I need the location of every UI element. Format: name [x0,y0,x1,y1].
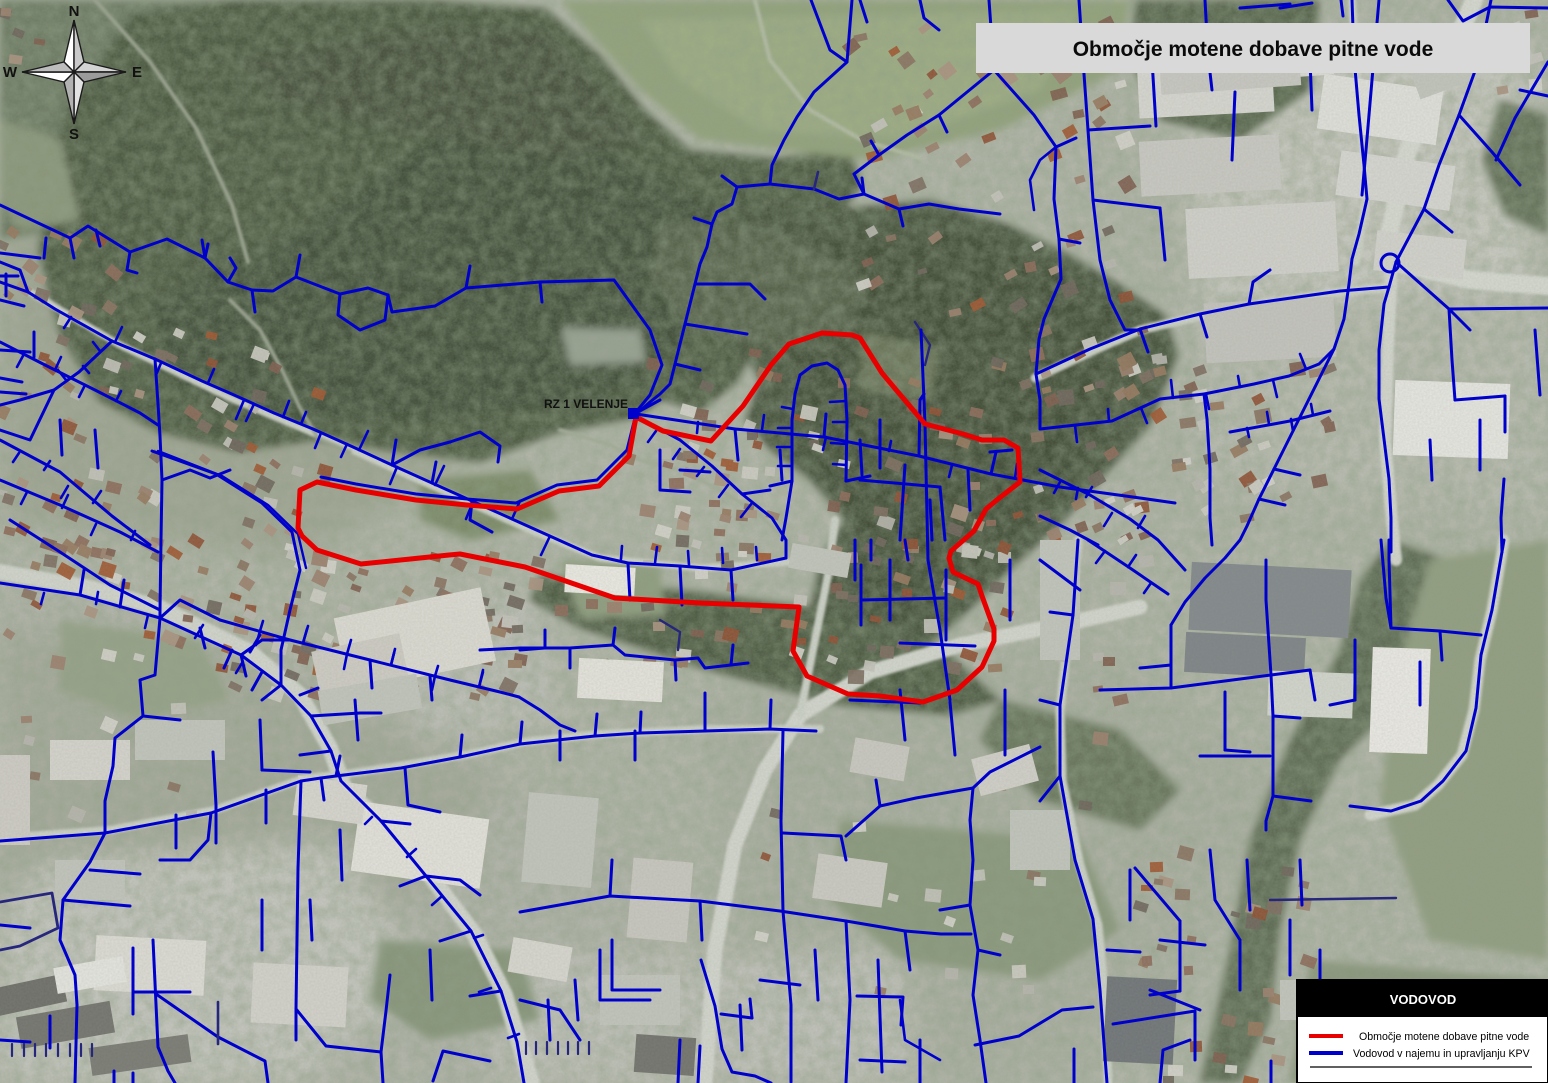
svg-text:E: E [132,64,142,81]
svg-text:VODOVOD: VODOVOD [1390,992,1456,1007]
svg-text:N: N [69,3,80,20]
svg-text:Območje motene dobave pitne vo: Območje motene dobave pitne vode [1073,38,1434,61]
svg-text:Območje motene dobave pitne vo: Območje motene dobave pitne vode [1359,1031,1529,1043]
svg-text:RZ 1 VELENJE: RZ 1 VELENJE [544,397,628,411]
svg-text:W: W [3,64,18,81]
svg-text:S: S [69,126,79,143]
svg-text:Vodovod v najemu in upravljanj: Vodovod v najemu in upravljanju KPV [1353,1048,1531,1060]
